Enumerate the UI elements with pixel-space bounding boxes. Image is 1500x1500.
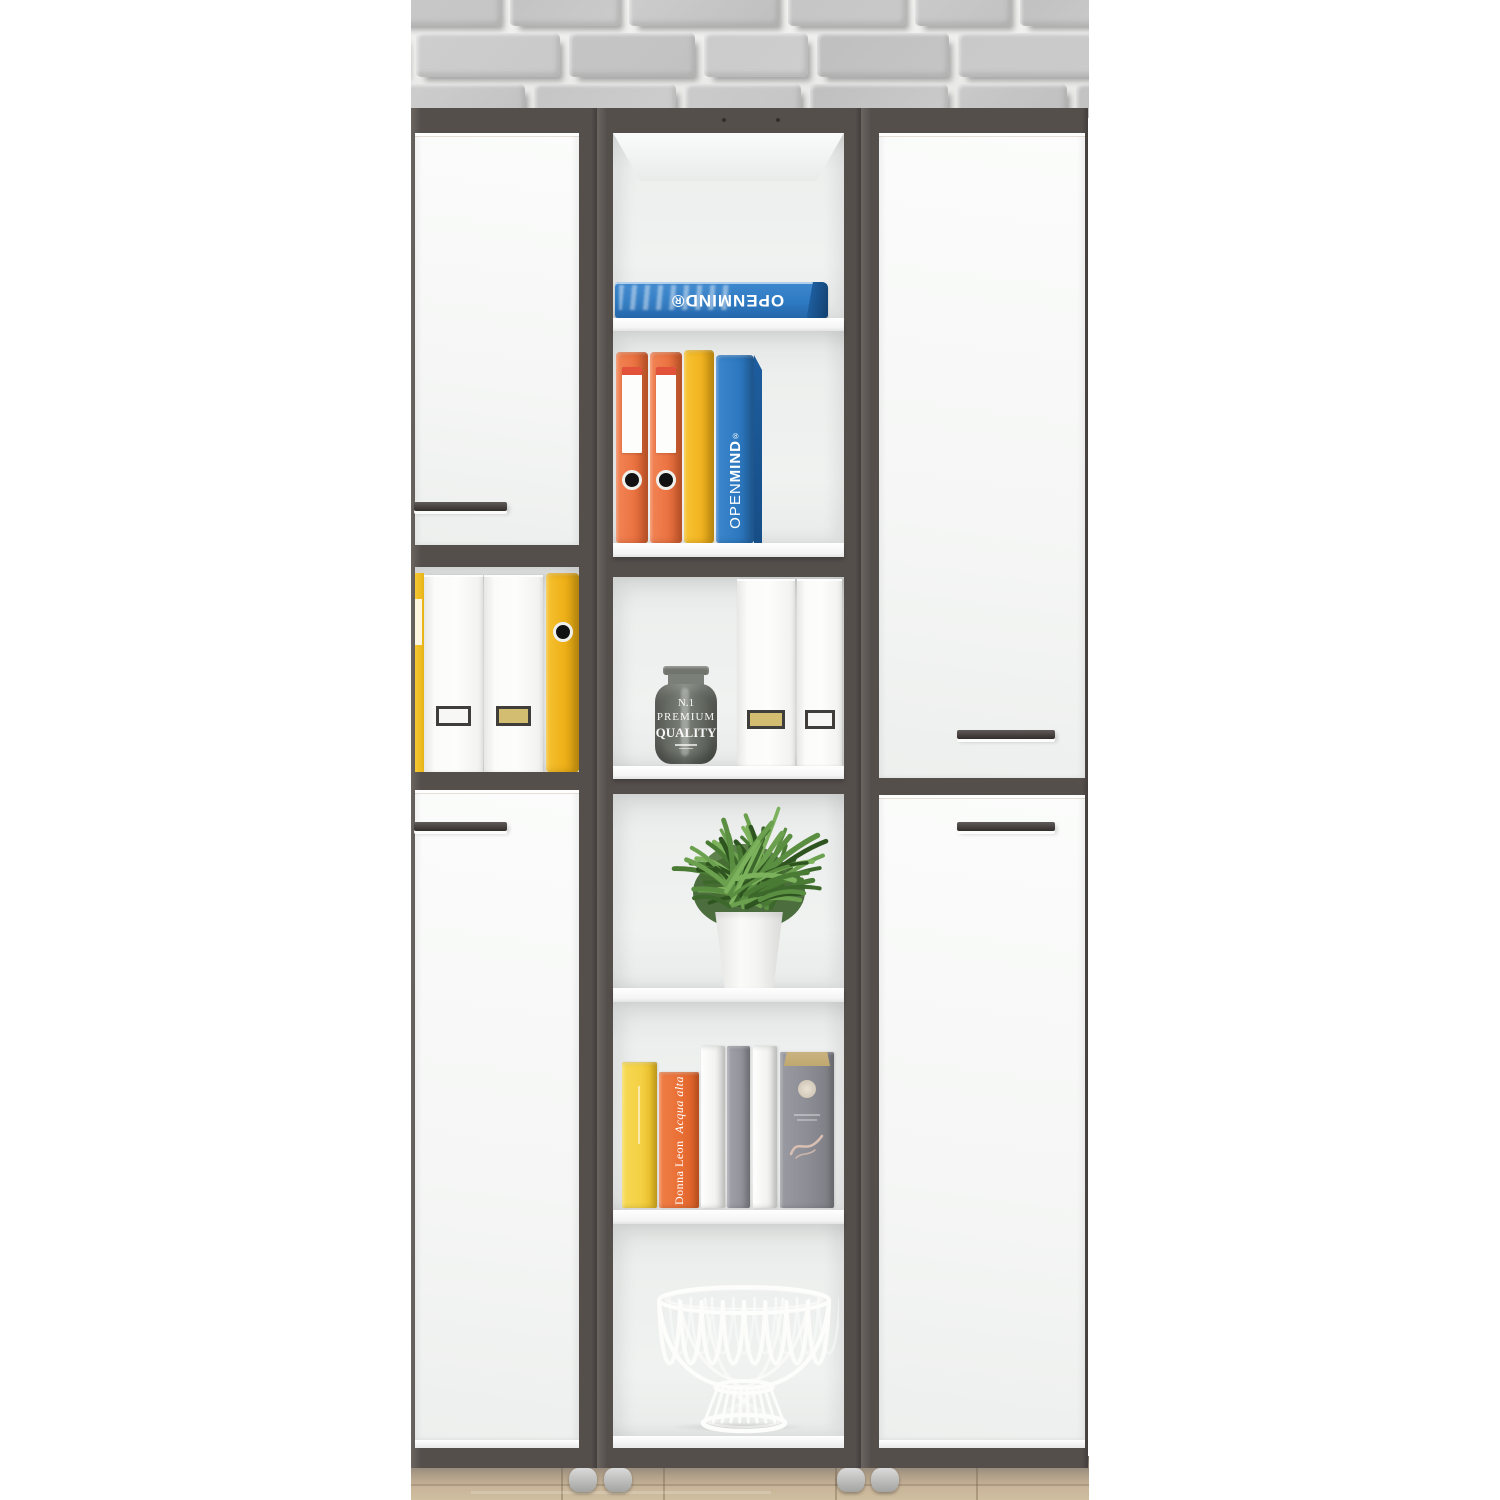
brick [629, 0, 779, 26]
brick [704, 33, 808, 77]
shelf [613, 766, 844, 779]
right-cabinet-upper-door-handle [957, 730, 1055, 739]
binder-dark-end [798, 282, 828, 318]
magazine-file-white [484, 575, 543, 772]
compartment-plant [613, 794, 844, 988]
jar-text: N.1 PREMIUM QUALITY [655, 696, 717, 749]
file-label-holder-gold [747, 710, 785, 729]
center-unit-bottom-panel [613, 1436, 844, 1448]
binder-spine-label [622, 367, 642, 453]
cabinet-foot [604, 1468, 632, 1492]
brick [510, 0, 620, 26]
spine-brand-reg: ® [731, 430, 740, 440]
spine-brand-open: OPEN [727, 482, 744, 529]
book-script-squiggle [788, 1128, 826, 1162]
binder-finger-hole [553, 622, 573, 642]
jar-micro-text-bar [675, 744, 697, 746]
left-cabinet-upper-door-handle [414, 502, 507, 511]
binder-spine-label [656, 367, 676, 453]
file-label-holder [805, 710, 835, 729]
brick [569, 33, 695, 77]
file-label-holder-gold [496, 706, 531, 726]
cabinet-foot [871, 1468, 899, 1492]
magazine-file-white [737, 579, 795, 766]
book-orange-donna-leon: Donna Leon Acqua alta [659, 1072, 699, 1208]
shelf [613, 988, 844, 1002]
center-shelf-tower: OPENMIND® OPENMIND® [597, 108, 861, 1468]
page-background: { "objects": { "wall": "gray painted bri… [0, 0, 1500, 1500]
screw-dot [776, 118, 780, 122]
jar-no-text: N.1 [655, 696, 717, 710]
orange-lever-arch-binder [616, 352, 648, 543]
glass-jar: N.1 PREMIUM QUALITY [655, 684, 717, 764]
left-cabinet-lower-door [415, 790, 579, 1440]
magazine-file-white [797, 579, 842, 766]
brick [411, 0, 501, 26]
brick-wall [411, 0, 1089, 118]
book-micro-text [794, 1114, 820, 1116]
book-white [701, 1046, 725, 1208]
screw-dot [722, 118, 726, 122]
brick [958, 33, 1089, 77]
binder-spine-text-area: OPENMIND® [716, 381, 754, 529]
right-cabinet-lower-door-handle [957, 822, 1055, 831]
floor-plank-seam [663, 1464, 665, 1500]
book-spine-micro-text [638, 1086, 640, 1144]
binder-depth-edge [754, 355, 762, 543]
shelf [613, 1210, 844, 1224]
yellow-lever-arch-binder [546, 573, 579, 772]
floor-plank-seam [561, 1464, 563, 1500]
product-photo-scene: OPENMIND® OPENMIND® [411, 0, 1089, 1500]
left-cabinet [411, 108, 597, 1468]
binder-finger-hole [622, 470, 642, 490]
right-cabinet-upper-door [879, 133, 1085, 778]
compartment-binders: OPENMIND® [613, 331, 844, 543]
brick [1020, 0, 1089, 26]
binder-finger-hole [656, 470, 676, 490]
cabinet-foot [569, 1468, 597, 1492]
right-cabinet-base-edge [879, 1440, 1085, 1448]
binder-label-sliver [415, 599, 422, 645]
magazine-file-white [424, 575, 483, 772]
compartment-jar-files: N.1 PREMIUM QUALITY [613, 577, 844, 766]
left-cabinet-open-shelf [415, 567, 579, 772]
right-cabinet [861, 108, 1088, 1468]
book-yellow [622, 1062, 657, 1208]
yellow-lever-arch-binder [684, 350, 714, 543]
book-spine-text-area: Donna Leon Acqua alta [659, 1072, 699, 1208]
compartment-top: OPENMIND® [613, 133, 844, 318]
jar-premium-text: PREMIUM [655, 710, 717, 724]
compartment-basket [613, 1224, 844, 1436]
flat-binder-blue: OPENMIND® [615, 282, 828, 318]
jar-micro-text-bar [679, 748, 693, 749]
right-cabinet-lower-door [879, 795, 1085, 1440]
book-white [753, 1046, 777, 1208]
book-page-edges [784, 1052, 830, 1066]
book-gray [727, 1046, 750, 1208]
wire-basket [649, 1276, 839, 1434]
book-author-text: Donna Leon [672, 1140, 686, 1205]
orange-lever-arch-binder [650, 352, 682, 543]
flat-binder-brand-text: OPENMIND® [671, 290, 784, 310]
floor-plank-line [411, 1484, 1089, 1486]
cabinet-foot [837, 1468, 865, 1492]
brick [788, 0, 906, 26]
book-title-text: Acqua alta [672, 1076, 686, 1133]
compartment-books: Donna Leon Acqua alta [613, 1002, 844, 1210]
brick [817, 33, 949, 77]
jar-quality-text: QUALITY [655, 725, 717, 742]
blue-openmind-binder: OPENMIND® [716, 355, 754, 543]
left-cabinet-lower-door-handle [414, 822, 507, 831]
left-cabinet-upper-door [415, 133, 579, 545]
book-gray-thick [780, 1052, 834, 1208]
brick [416, 33, 560, 77]
left-cabinet-base-edge [415, 1440, 579, 1448]
shelf [613, 543, 844, 557]
spine-brand-mind: MIND [727, 440, 744, 482]
file-label-holder [436, 706, 471, 726]
plant-pot [713, 912, 785, 988]
book-micro-text [797, 1119, 817, 1121]
book-emblem [798, 1080, 816, 1098]
yellow-binder-edge [415, 573, 424, 772]
floor-plank-seam [976, 1464, 978, 1500]
brick [915, 0, 1011, 26]
shelf [613, 318, 844, 331]
compartment-ceiling [613, 133, 844, 181]
